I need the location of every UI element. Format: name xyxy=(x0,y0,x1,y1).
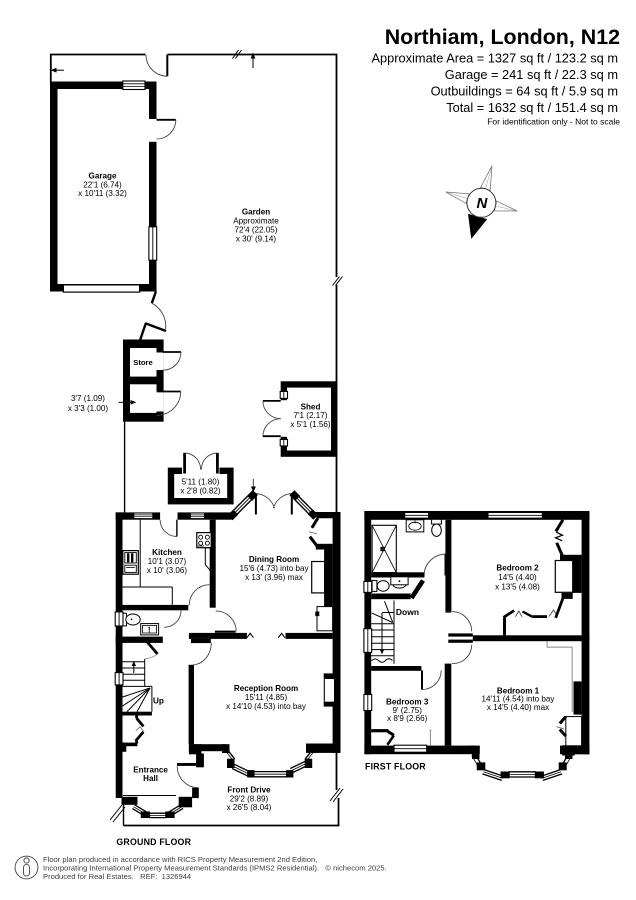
svg-text:N: N xyxy=(476,195,488,212)
svg-text:Down: Down xyxy=(396,607,419,617)
svg-text:Dining Room: Dining Room xyxy=(249,555,299,564)
svg-text:x 10'11 (3.32): x 10'11 (3.32) xyxy=(78,189,127,198)
svg-text:Garage: Garage xyxy=(89,172,117,181)
svg-text:x 10' (3.06): x 10' (3.06) xyxy=(147,566,188,575)
svg-text:Produced for Real Estates. R: Produced for Real Estates. REF: 1326944 xyxy=(43,872,191,881)
svg-text:x 26'5 (8.04): x 26'5 (8.04) xyxy=(227,803,272,812)
svg-text:Garage = 241 sq ft / 22.3 sq m: Garage = 241 sq ft / 22.3 sq m xyxy=(445,67,618,82)
svg-text:FIRST FLOOR: FIRST FLOOR xyxy=(365,762,426,772)
svg-text:Bedroom 2: Bedroom 2 xyxy=(496,564,539,573)
svg-text:15'11 (4.85): 15'11 (4.85) xyxy=(245,693,288,702)
svg-text:Store: Store xyxy=(133,358,152,367)
svg-text:Approximate: Approximate xyxy=(233,217,279,226)
svg-text:x 13' (3.96) max: x 13' (3.96) max xyxy=(245,573,303,582)
svg-text:x 3'3 (1.00): x 3'3 (1.00) xyxy=(68,404,109,413)
svg-text:GROUND FLOOR: GROUND FLOOR xyxy=(116,837,191,847)
svg-text:Front Drive: Front Drive xyxy=(227,786,271,795)
svg-text:For identification only - Not: For identification only - Not to scale xyxy=(487,117,620,127)
svg-text:Northiam, London, N12: Northiam, London, N12 xyxy=(385,25,620,49)
svg-text:Reception Room: Reception Room xyxy=(234,684,298,693)
svg-text:Approximate Area = 1327 sq ft: Approximate Area = 1327 sq ft / 123.2 sq… xyxy=(372,51,618,66)
svg-text:x 30' (9.14): x 30' (9.14) xyxy=(236,235,277,244)
svg-text:x 13'5 (4.08): x 13'5 (4.08) xyxy=(495,583,540,592)
svg-text:Total = 1632 sq ft / 151.4 sq: Total = 1632 sq ft / 151.4 sq m xyxy=(446,100,618,115)
svg-text:x 8'9 (2.66): x 8'9 (2.66) xyxy=(387,714,428,723)
svg-text:x 14'5 (4.40) max: x 14'5 (4.40) max xyxy=(487,703,549,712)
svg-text:14'5 (4.40): 14'5 (4.40) xyxy=(498,573,537,582)
svg-text:7'1 (2.17): 7'1 (2.17) xyxy=(294,411,328,420)
svg-text:15'6 (4.73) into bay: 15'6 (4.73) into bay xyxy=(239,564,309,573)
svg-text:72'4 (22.05): 72'4 (22.05) xyxy=(235,226,278,235)
svg-text:x 5'1 (1.56): x 5'1 (1.56) xyxy=(290,420,331,429)
svg-text:x 14'10 (4.53) into bay: x 14'10 (4.53) into bay xyxy=(226,702,307,711)
svg-text:Up: Up xyxy=(153,697,164,706)
svg-text:22'1 (6.74): 22'1 (6.74) xyxy=(83,180,122,189)
svg-text:x 2'8 (0.82): x 2'8 (0.82) xyxy=(180,486,221,495)
svg-text:29'2 (8.89): 29'2 (8.89) xyxy=(230,794,269,803)
svg-text:5'11 (1.80): 5'11 (1.80) xyxy=(182,478,220,487)
svg-text:10'1 (3.07): 10'1 (3.07) xyxy=(148,557,187,566)
svg-text:Kitchen: Kitchen xyxy=(152,548,182,557)
svg-text:Hall: Hall xyxy=(143,774,158,783)
svg-text:3'7 (1.09): 3'7 (1.09) xyxy=(71,394,105,403)
svg-text:Outbuildings = 64 sq ft / 5.9: Outbuildings = 64 sq ft / 5.9 sq m xyxy=(431,84,618,99)
svg-text:Garden: Garden xyxy=(242,208,270,217)
